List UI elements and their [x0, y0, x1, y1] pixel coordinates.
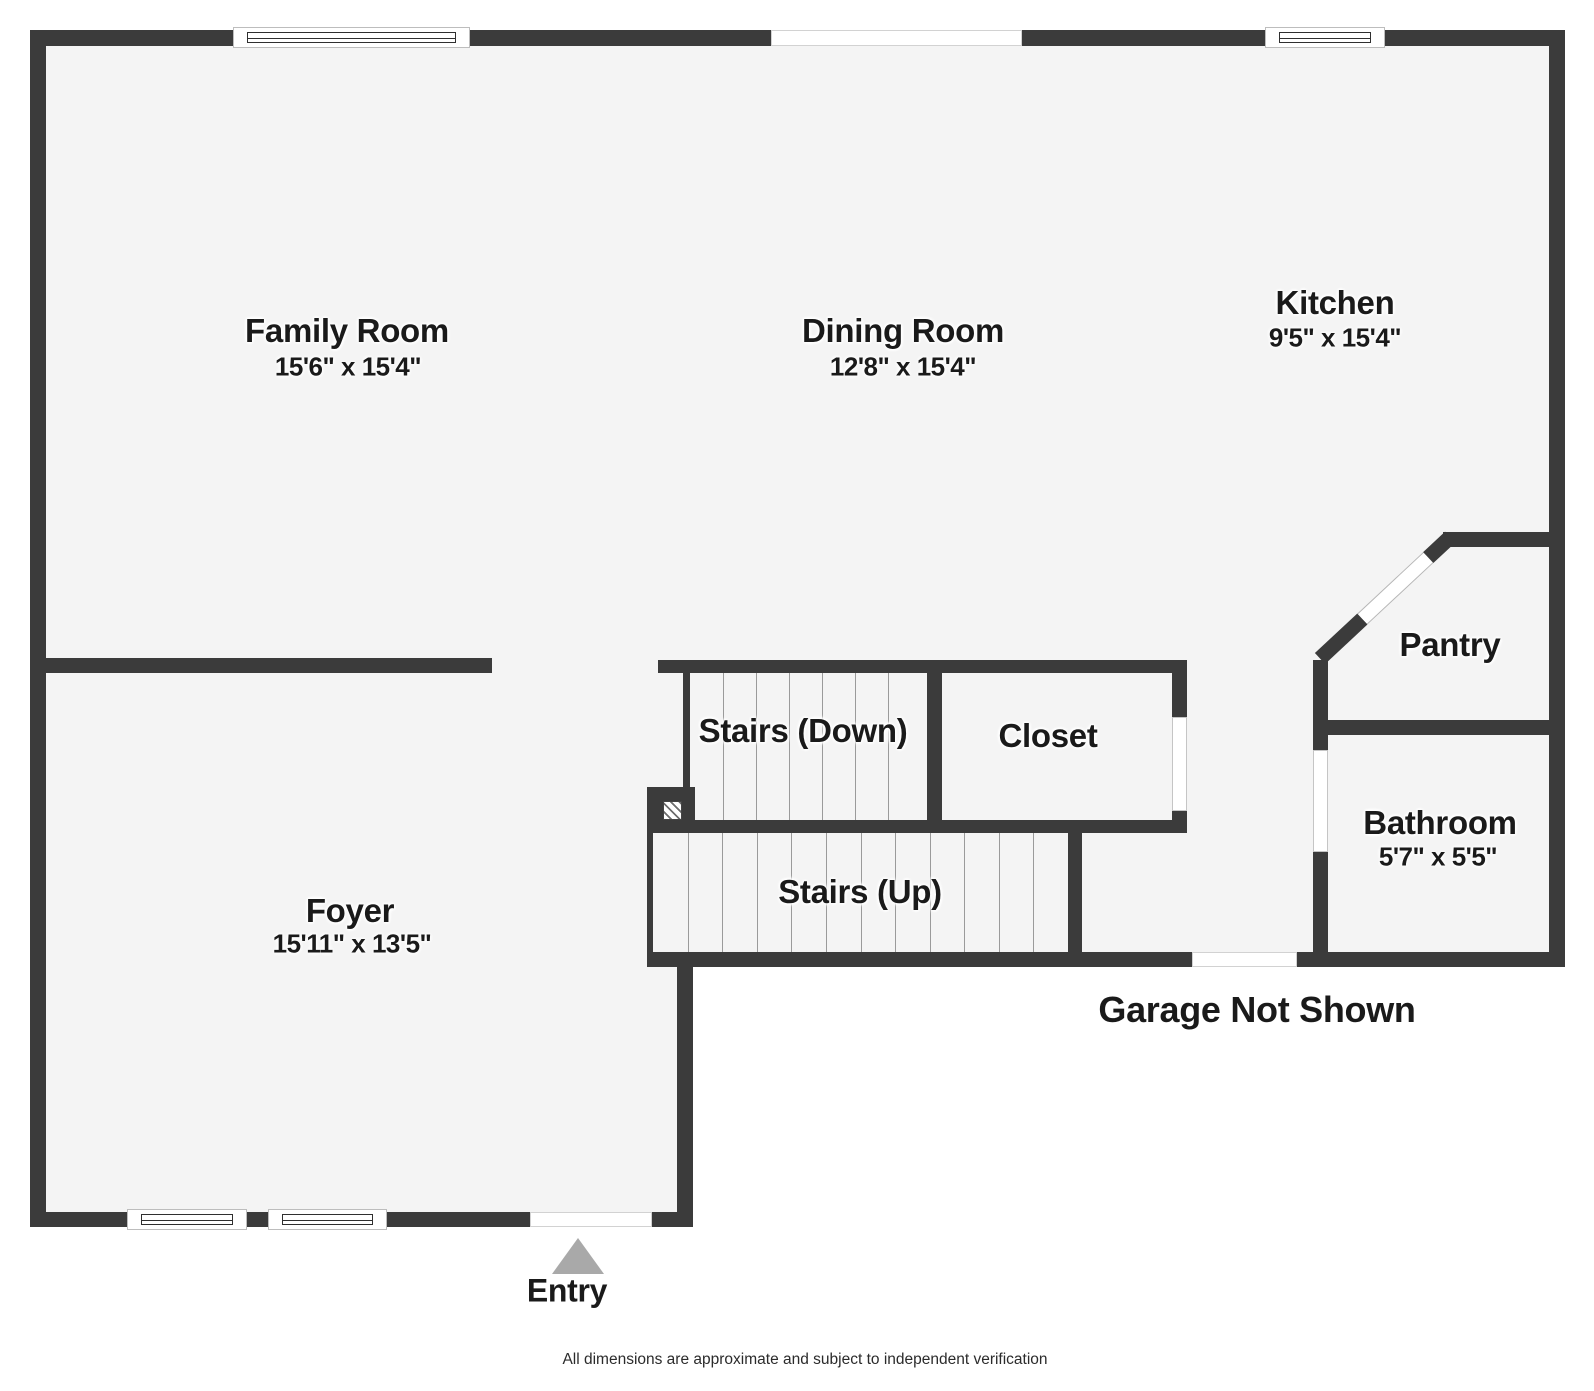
label-closet: Closet — [998, 717, 1097, 755]
dims-family-room: 15'6" x 15'4" — [275, 352, 421, 383]
wall-bathroom-left — [1313, 852, 1328, 952]
dims-bathroom: 5'7" x 5'5" — [1379, 842, 1497, 873]
window-pane — [282, 1214, 373, 1225]
door-bathroom — [1313, 750, 1328, 852]
disclaimer-text: All dimensions are approximate and subje… — [562, 1351, 1047, 1369]
wall-stairs-up-right — [1068, 833, 1082, 952]
stair-tread — [688, 833, 689, 952]
stair-tread — [757, 833, 758, 952]
stair-tread — [999, 833, 1000, 952]
opening-garage-door — [1192, 952, 1297, 967]
wall-stairs-mid — [695, 820, 1187, 833]
door-closet — [1172, 717, 1187, 811]
window-foyer-left — [127, 1209, 247, 1230]
wall-stairs-top — [658, 660, 1187, 673]
window-midline — [248, 38, 455, 39]
label-dining-room: Dining Room — [802, 312, 1004, 350]
stair-tread — [722, 833, 723, 952]
wall-foyer-bottom-left — [30, 1212, 127, 1227]
wall-exterior-right — [1549, 30, 1565, 967]
window-midline — [142, 1220, 232, 1221]
wall-closet-right-lower — [1172, 811, 1187, 833]
window-pane — [141, 1214, 233, 1225]
hatch-icon — [663, 801, 682, 820]
label-stairs-down: Stairs (Down) — [699, 712, 908, 750]
stair-post-hatch — [647, 787, 695, 833]
window-midline — [1280, 38, 1370, 39]
stair-tread — [964, 833, 965, 952]
window-kitchen — [1265, 27, 1385, 48]
window-pane — [247, 32, 456, 43]
window-foyer-right — [268, 1209, 387, 1230]
wall-bottom-stairs — [647, 952, 1192, 967]
wall-foyer-bottom-mid — [387, 1212, 530, 1227]
label-kitchen: Kitchen — [1276, 284, 1395, 322]
dims-dining-room: 12'8" x 15'4" — [830, 352, 976, 383]
dims-foyer: 15'11" x 13'5" — [273, 929, 432, 960]
entry-arrow-icon — [552, 1238, 604, 1274]
label-entry: Entry — [527, 1273, 607, 1310]
wall-stairs-closet-divider — [927, 660, 942, 833]
window-family-room — [233, 27, 470, 48]
wall-closet-right-upper — [1172, 673, 1187, 717]
label-garage-note: Garage Not Shown — [1098, 989, 1415, 1031]
wall-pantry-left — [1313, 660, 1328, 750]
window-midline — [283, 1220, 372, 1221]
floor-plan: Family Room 15'6" x 15'4" Dining Room 12… — [0, 0, 1594, 1391]
dims-kitchen: 9'5" x 15'4" — [1269, 323, 1401, 354]
floor-foyer-area — [46, 952, 677, 1212]
stair-tread — [1033, 833, 1034, 952]
wall-bottom-bathroom — [1297, 952, 1565, 967]
opening-dining-patio — [771, 30, 1022, 46]
wall-pantry-bathroom-divider — [1313, 720, 1565, 735]
wall-between-foyer-windows — [247, 1212, 268, 1227]
wall-exterior-left — [30, 30, 46, 1227]
window-pane — [1279, 32, 1371, 43]
label-foyer: Foyer — [306, 892, 394, 930]
wall-stairs-down-left — [683, 673, 690, 787]
wall-family-foyer-divider — [30, 658, 492, 673]
wall-foyer-right — [677, 965, 693, 1227]
wall-pantry-top — [1443, 532, 1565, 547]
wall-stairs-up-left — [647, 833, 653, 952]
label-stairs-up: Stairs (Up) — [778, 873, 942, 911]
label-bathroom: Bathroom — [1363, 804, 1516, 842]
opening-entry-door — [530, 1212, 652, 1227]
label-pantry: Pantry — [1400, 626, 1501, 664]
label-family-room: Family Room — [245, 312, 449, 350]
